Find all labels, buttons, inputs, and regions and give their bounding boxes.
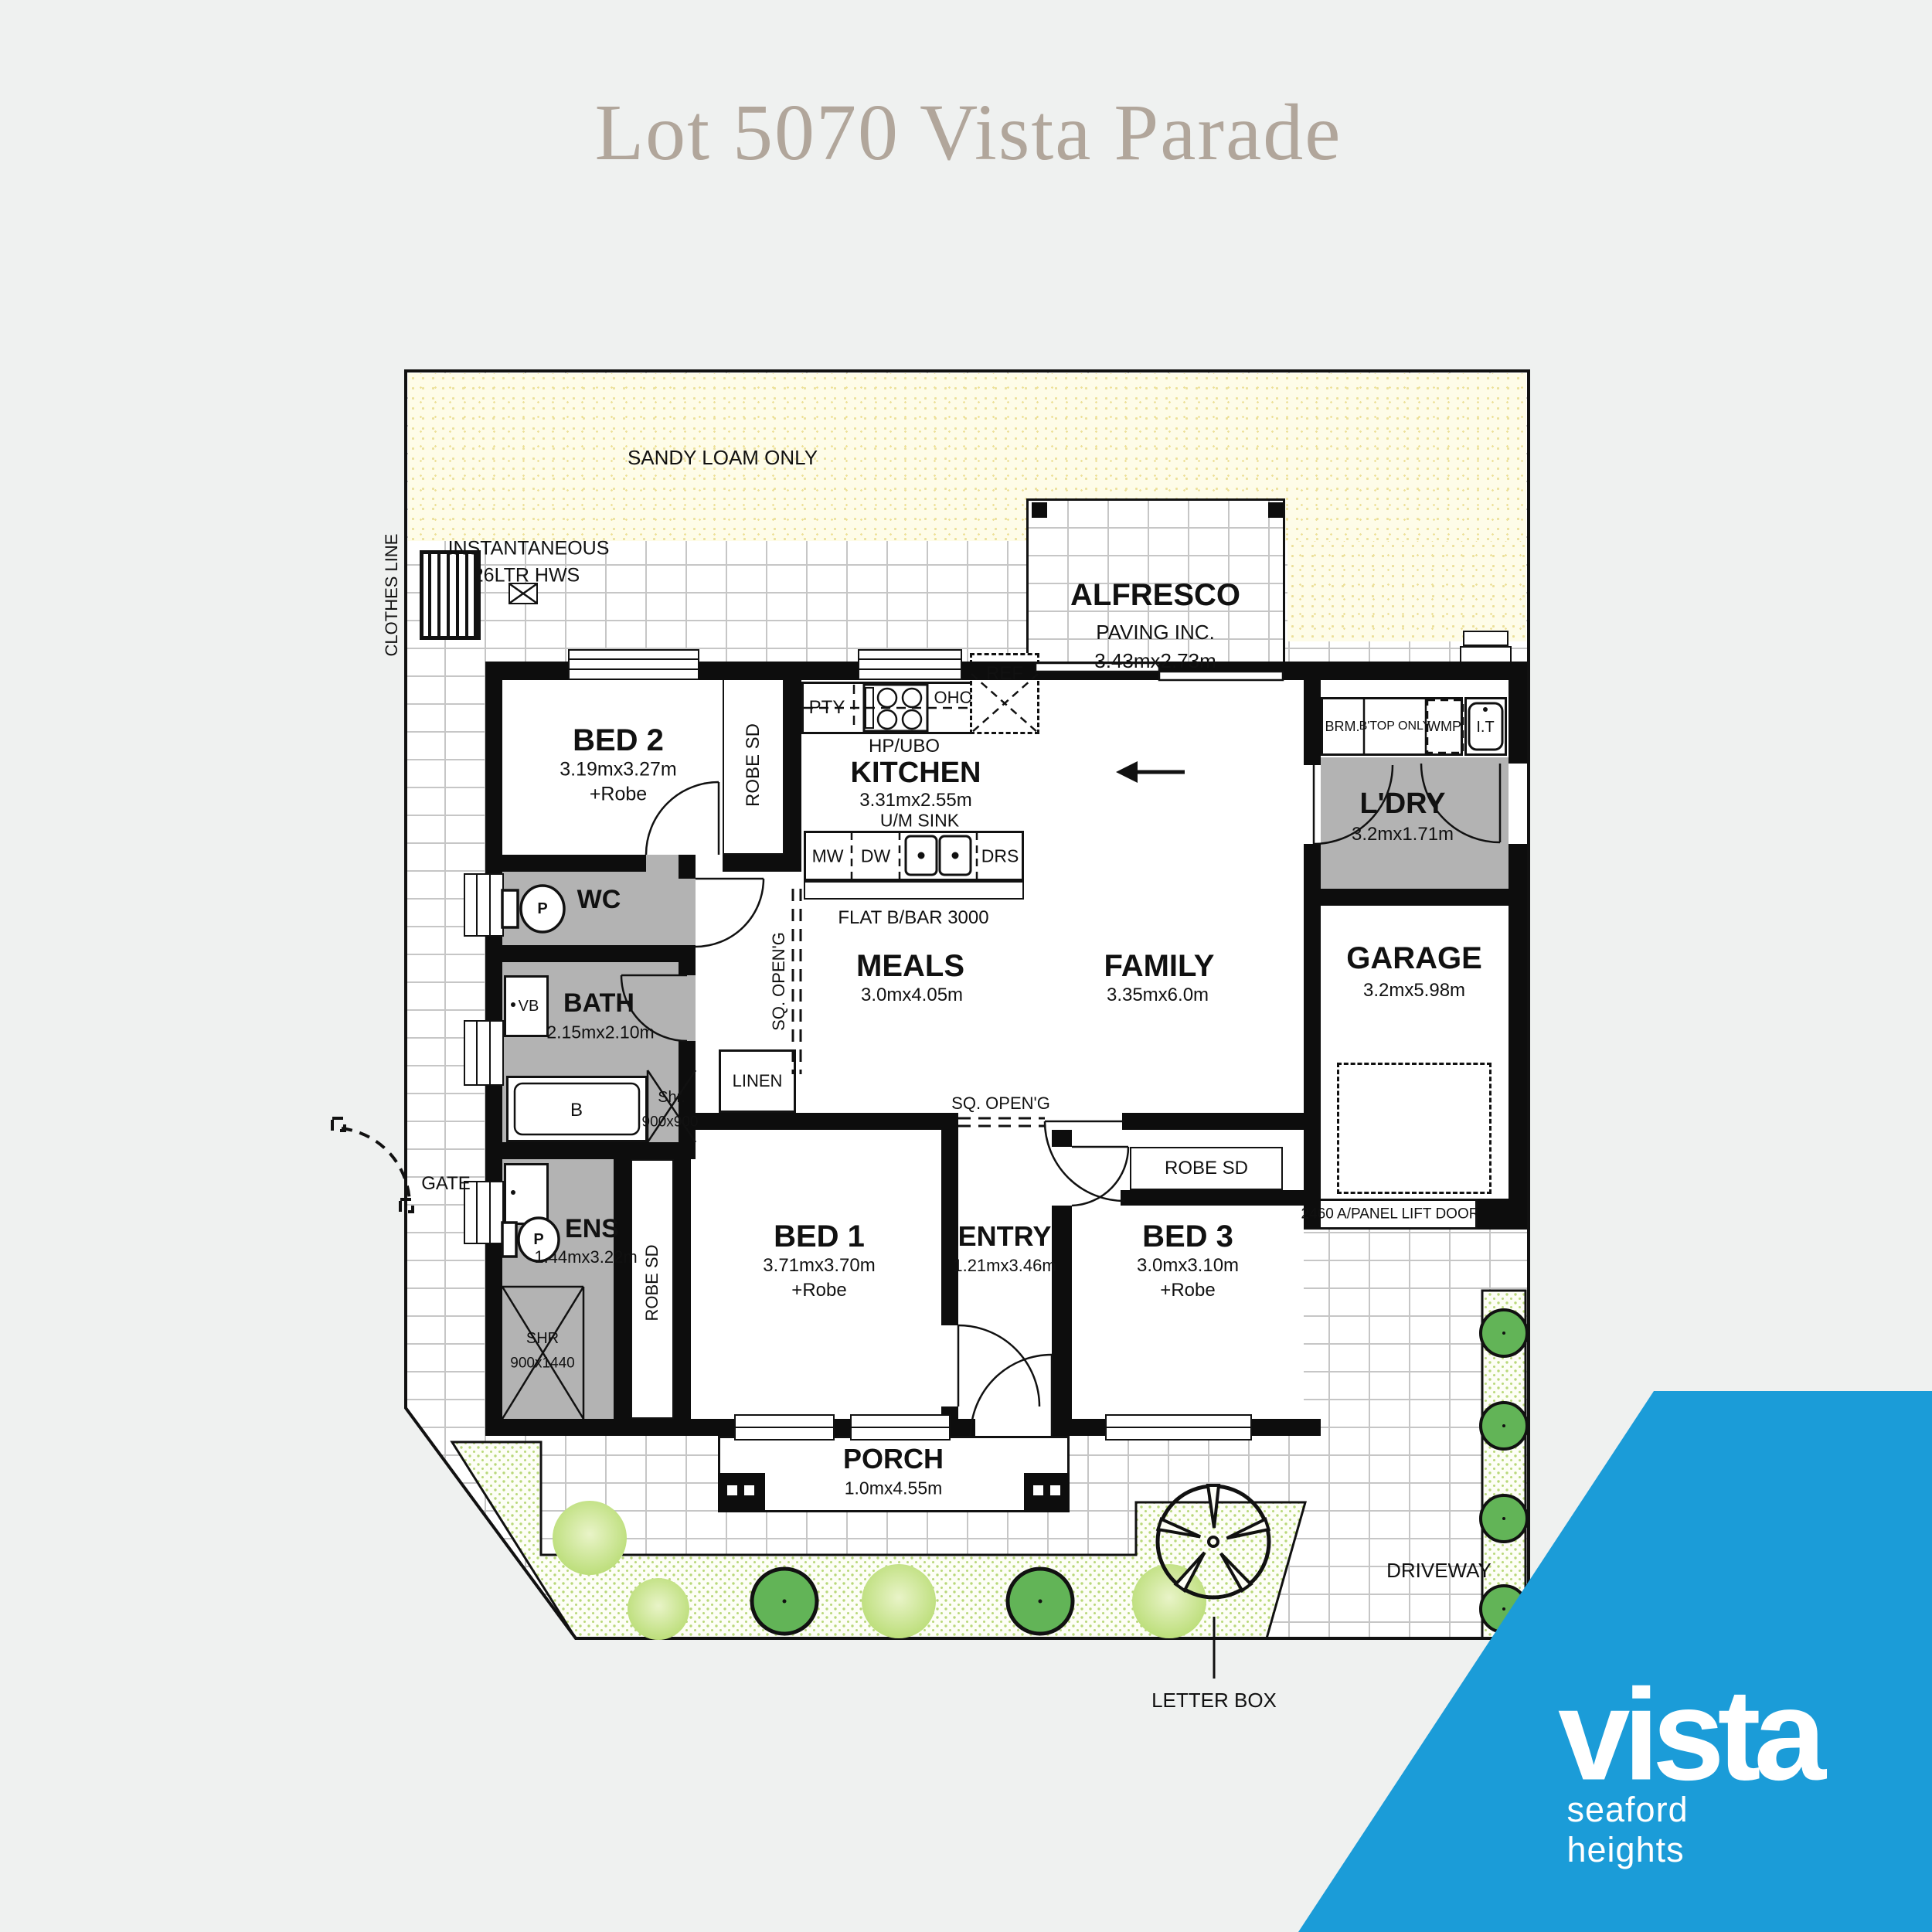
bed2-label: BED 2	[573, 725, 664, 756]
bed2-dims: 3.19mx3.27m	[560, 760, 676, 780]
wall-family-garage-a	[1304, 679, 1321, 765]
wall-entry-bed3-b	[1052, 1206, 1072, 1419]
trough-label: I.T	[1476, 719, 1494, 735]
meals-label: MEALS	[856, 951, 964, 981]
alfresco-dims: 3.43mx2.73m	[1094, 651, 1216, 671]
bath-dims: 2.15mx2.10m	[546, 1024, 654, 1042]
sq-opening-horiz-label: SQ. OPEN'G	[951, 1095, 1050, 1112]
garage-car-space	[1337, 1063, 1492, 1194]
fridge-label: REF	[986, 665, 1023, 683]
bed3-extra: +Robe	[1160, 1281, 1215, 1300]
vista-logo: vista	[1558, 1661, 1819, 1810]
breakfast-bar-label: FLAT B/BAR 3000	[838, 909, 988, 927]
tub-label: B	[570, 1101, 583, 1120]
family-label: FAMILY	[1104, 951, 1215, 981]
ens-shower-size: 900x1440	[510, 1356, 574, 1371]
window-kitchen	[858, 649, 962, 680]
window-bed2	[568, 649, 699, 680]
wc-toilet-label: P	[537, 901, 547, 917]
entry-label: ENTRY	[958, 1223, 1052, 1250]
alfresco-post-right	[1268, 502, 1284, 518]
clothes-line-label: CLOTHES LINE	[383, 534, 400, 657]
garage-door-label: 2460 A/PANEL LIFT DOOR	[1301, 1207, 1480, 1222]
wall-ldry-garage	[1304, 889, 1528, 906]
shower-bath-label: Shr.	[658, 1090, 685, 1105]
laundry-window-a	[1463, 631, 1509, 646]
alfresco-note: PAVING INC.	[1096, 622, 1215, 642]
wall-hall-b	[679, 947, 696, 975]
laundry-room	[1321, 757, 1509, 889]
bed3-robe-label: ROBE SD	[1165, 1159, 1248, 1178]
garage-label: GARAGE	[1346, 943, 1482, 974]
gate-label: GATE	[421, 1175, 471, 1193]
ens-shower-label: SHR	[526, 1331, 559, 1346]
ens-label: ENS	[565, 1216, 619, 1242]
bed3-label: BED 3	[1142, 1221, 1233, 1252]
entry-dims: 1.21mx3.46m	[953, 1257, 1056, 1274]
porch-dims: 1.0mx4.55m	[845, 1480, 943, 1498]
bed2-robe-label: ROBE SD	[744, 723, 763, 807]
window-bed1-a	[734, 1414, 835, 1440]
hws-label-1: INSTANTANEOUS	[448, 539, 610, 559]
wall-wc-bath	[485, 945, 696, 962]
broom-label: BRM.	[1325, 719, 1360, 733]
kitchen-island-shelf	[804, 881, 1024, 900]
porch-label: PORCH	[843, 1445, 944, 1473]
meals-dims: 3.0mx4.05m	[861, 986, 963, 1005]
bed1-dims: 3.71mx3.70m	[763, 1257, 875, 1275]
sandy-loam-area	[408, 373, 1526, 541]
bed2-extra: +Robe	[590, 785, 647, 804]
family-dims: 3.35mx6.0m	[1107, 986, 1209, 1005]
laundry-label: L'DRY	[1359, 789, 1445, 818]
letterbox	[1202, 1590, 1227, 1617]
mw-label: MW	[812, 848, 844, 866]
wall-right-a	[1509, 662, 1528, 764]
page-title: Lot 5070 Vista Parade	[595, 93, 1342, 173]
porch-post-right	[1024, 1473, 1070, 1512]
bed1-robe-label: ROBE SD	[644, 1244, 661, 1321]
floorplan-page: Lot 5070 Vista Parade	[0, 0, 1932, 1932]
sandy-loam-area-right	[1287, 541, 1526, 641]
kitchen-label: KITCHEN	[851, 758, 981, 787]
bath-label: BATH	[563, 990, 634, 1016]
wall-ens-right	[614, 1159, 631, 1419]
kitchen-dims: 3.31mx2.55m	[859, 791, 971, 810]
dw-label: DW	[861, 848, 890, 866]
window-bed1-b	[850, 1414, 951, 1440]
wall-bed1-entry-a	[941, 1130, 958, 1325]
wall-meals-bottom-left	[696, 1113, 958, 1130]
drs-label: DRS	[981, 848, 1019, 866]
window-bath	[464, 1020, 504, 1086]
alfresco-label: ALFRESCO	[1070, 580, 1240, 611]
wall-bed2-kitchen	[784, 679, 801, 855]
sandy-loam-label: SANDY LOAM ONLY	[628, 447, 818, 468]
ens-dims: 1.44mx3.22m	[534, 1249, 637, 1266]
alfresco-post-left	[1032, 502, 1047, 518]
window-wc	[464, 873, 504, 937]
linen-label: LINEN	[733, 1073, 783, 1090]
ohc-label: OHC	[934, 689, 972, 706]
wall-meals-bottom-right	[1122, 1113, 1304, 1130]
wall-bed2-bottom-a	[502, 855, 646, 872]
wc-label: WC	[577, 886, 621, 913]
wall-robe1-right	[674, 1159, 691, 1419]
wall-garage-corner	[1478, 1199, 1528, 1230]
umsink-label: U/M SINK	[880, 812, 959, 830]
wall-entry-bed3-a	[1052, 1130, 1072, 1147]
front-door-opening	[975, 1419, 1052, 1436]
wall-bed2-bottom-b	[723, 855, 801, 872]
laundry-dims: 3.2mx1.71m	[1352, 825, 1454, 844]
shower-bath-size: 900x900	[642, 1115, 699, 1130]
bed1-extra: +Robe	[791, 1281, 846, 1300]
driveway-label: DRIVEWAY	[1386, 1560, 1492, 1580]
garage-dims: 3.2mx5.98m	[1363, 981, 1465, 1000]
sq-opening-vert-label: SQ. OPEN'G	[770, 932, 787, 1031]
laundry-window-b	[1460, 646, 1512, 663]
pantry-label: PTY	[809, 699, 845, 717]
ens-toilet-label: P	[533, 1232, 543, 1247]
hws-label-2: 26LTR HWS	[473, 566, 580, 586]
clothesline	[420, 550, 481, 640]
porch-post-left	[718, 1473, 765, 1512]
vista-tagline: seaford heights	[1567, 1790, 1811, 1870]
vb-bath-label: VB	[519, 998, 539, 1014]
window-bed3	[1105, 1414, 1252, 1440]
wmp-label: WMP	[1427, 719, 1461, 733]
wall-bath-ens	[485, 1142, 696, 1159]
bed3-dims: 3.0mx3.10m	[1137, 1257, 1239, 1275]
wall-hall-a	[679, 855, 696, 879]
btop-label: B'TOP ONLY	[1359, 720, 1431, 733]
bed1-label: BED 1	[774, 1221, 865, 1252]
hpubo-label: HP/UBO	[869, 737, 940, 756]
letterbox-label: LETTER BOX	[1151, 1690, 1277, 1710]
wall-bed3-robe	[1121, 1190, 1304, 1206]
vanity-ens	[504, 1163, 549, 1225]
gate-arc	[332, 1118, 413, 1212]
